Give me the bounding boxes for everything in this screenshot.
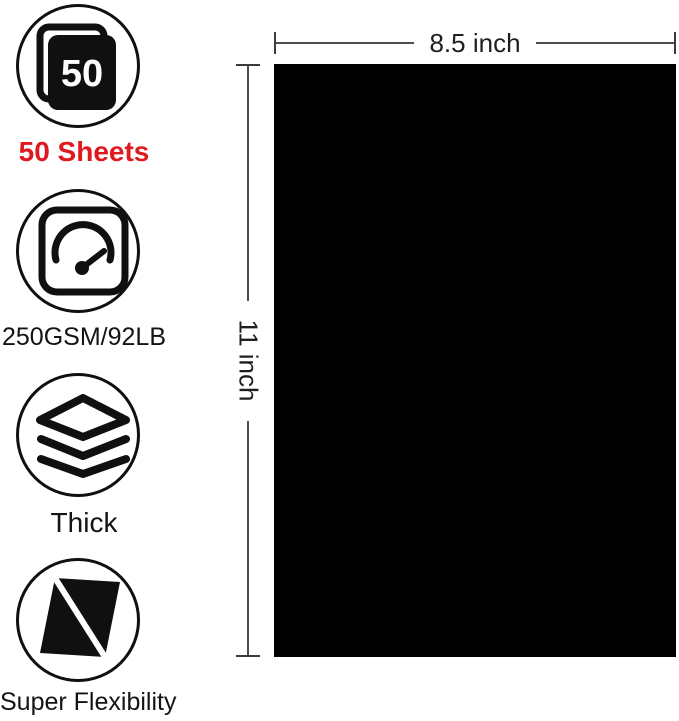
feature-sheet-count: 50: [16, 4, 140, 128]
feature-label-thickness: Thick: [0, 507, 168, 539]
layer-bottom: [41, 459, 126, 474]
height-dimension-label: 11 inch: [233, 320, 264, 402]
layer-middle: [41, 439, 126, 456]
dimension-cap-bottom: [236, 655, 260, 657]
feature-label-flexibility: Super Flexibility: [0, 688, 168, 717]
feature-label-weight: 250GSM/92LB: [0, 323, 168, 352]
height-dimension-label-box: 11 inch: [235, 313, 261, 409]
feature-thickness: [16, 373, 140, 497]
dimension-line: [276, 42, 414, 44]
layer-top: [40, 398, 126, 437]
gauge-icon: [19, 192, 137, 310]
dimension-line: [536, 42, 674, 44]
layers-icon: [19, 376, 137, 494]
feature-label-sheet-count: 50 Sheets: [0, 136, 168, 168]
dimension-line: [247, 421, 249, 656]
sheet-stack-50-icon: 50: [19, 7, 137, 125]
paper-sheet: [274, 64, 676, 657]
height-dimension: 11 inch: [235, 64, 261, 657]
dimension-tick-right: [674, 32, 676, 54]
flex-sheet-icon: [19, 561, 137, 679]
feature-weight: [16, 189, 140, 313]
width-dimension-label: 8.5 inch: [429, 31, 520, 55]
product-infographic: 50 50 Sheets 250GSM/92LB Thick Super Fle…: [0, 0, 679, 721]
width-dimension: 8.5 inch: [274, 31, 676, 55]
feature-flexibility: [16, 558, 140, 682]
sheet-count-number: 50: [61, 53, 103, 95]
gauge-pivot: [75, 261, 89, 275]
dimension-line: [247, 66, 249, 301]
